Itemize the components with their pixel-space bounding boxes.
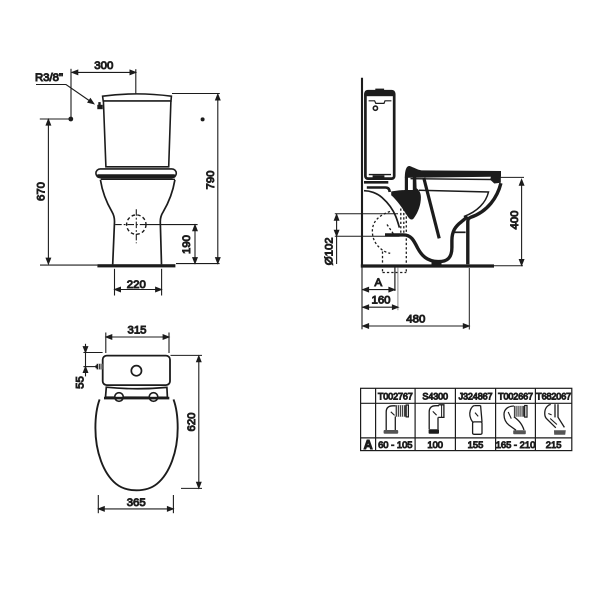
svg-text:300: 300 [94,60,113,72]
svg-text:60 - 105: 60 - 105 [378,439,412,450]
svg-text:165 - 210: 165 - 210 [496,439,536,450]
svg-text:J324867: J324867 [459,392,493,402]
svg-text:T002767: T002767 [378,392,413,402]
svg-text:220: 220 [127,279,146,291]
svg-text:400: 400 [509,210,521,229]
svg-text:A: A [374,277,382,289]
svg-text:480: 480 [406,313,425,325]
svg-text:S4300: S4300 [422,392,448,402]
svg-text:A: A [364,438,373,452]
svg-text:790: 790 [205,170,217,189]
svg-text:315: 315 [127,325,146,337]
svg-text:55: 55 [75,376,87,389]
svg-text:670: 670 [36,182,48,201]
svg-text:160: 160 [371,294,390,306]
svg-text:R3/8": R3/8" [35,72,63,84]
svg-text:Ø102: Ø102 [323,237,335,265]
svg-text:T002667: T002667 [498,392,533,402]
svg-text:620: 620 [186,412,198,431]
svg-text:215: 215 [546,439,562,450]
svg-text:100: 100 [427,439,443,450]
svg-text:T682067: T682067 [536,392,571,402]
svg-text:365: 365 [127,497,146,509]
svg-text:190: 190 [181,235,193,254]
svg-text:155: 155 [468,439,484,450]
